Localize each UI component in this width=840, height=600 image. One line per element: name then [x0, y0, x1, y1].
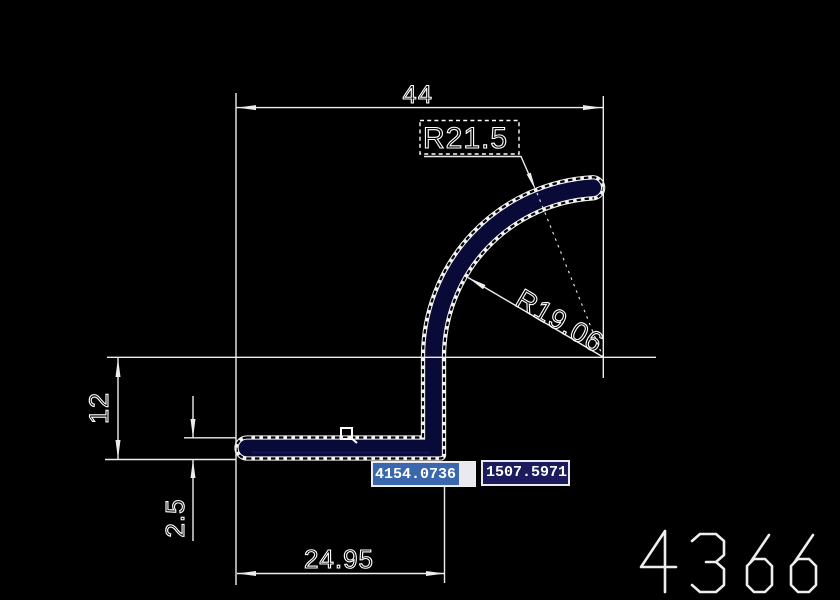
- svg-text:12: 12: [84, 392, 114, 424]
- svg-text:R19.06: R19.06: [510, 283, 609, 359]
- svg-text:R21.5: R21.5: [423, 122, 508, 155]
- svg-text:24.95: 24.95: [304, 544, 374, 574]
- svg-text:44: 44: [403, 81, 434, 109]
- svg-text:2.5: 2.5: [160, 498, 190, 537]
